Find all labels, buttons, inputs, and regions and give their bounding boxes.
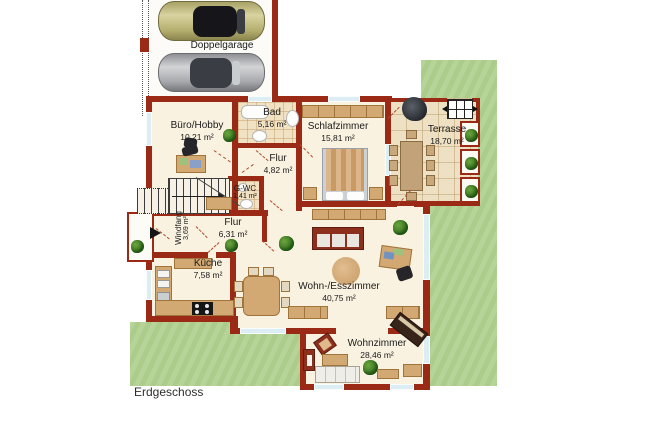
- skylight-arrow: [473, 106, 478, 112]
- room-area: 10,21 m²: [157, 132, 237, 142]
- terrace-chair: [389, 175, 398, 186]
- wall: [236, 143, 302, 148]
- room-area: 18,70 m²: [407, 136, 487, 146]
- sofa-cushions: [317, 234, 359, 247]
- bench: [377, 369, 399, 379]
- car-icon: [158, 1, 265, 41]
- window: [146, 270, 152, 300]
- sofa: [315, 366, 360, 383]
- room-area: 15,81 m²: [298, 133, 378, 143]
- desk-pad: [394, 248, 404, 255]
- room-label-buero: Büro/Hobby 10,21 m²: [157, 120, 237, 142]
- wall: [306, 328, 336, 334]
- wardrobe: [302, 105, 384, 118]
- window: [146, 112, 152, 146]
- garage-label: Doppelgarage: [182, 40, 262, 52]
- room-name: Windfang: [174, 200, 183, 256]
- nightstand: [303, 187, 317, 200]
- tree-icon: [402, 97, 427, 121]
- room-area: 3,69 m²: [183, 200, 191, 256]
- terrace-chair: [426, 175, 435, 186]
- room-label-terrasse: Terrasse 18,70 m²: [407, 124, 487, 146]
- window: [328, 96, 360, 102]
- room-area: 4,82 m²: [238, 165, 318, 175]
- terrace-chair: [426, 160, 435, 171]
- bed-duvet: [326, 149, 364, 191]
- chair: [263, 267, 274, 276]
- window: [248, 96, 272, 102]
- skylight-arrow: [442, 106, 447, 112]
- desk-paper: [190, 160, 201, 168]
- room-area: 6,31 m²: [203, 229, 263, 239]
- nightstand: [369, 187, 383, 200]
- room-name: Küche: [168, 258, 248, 270]
- exterior-steps: [137, 188, 168, 214]
- room-label-schlafzimmer: Schlafzimmer 15,81 m²: [298, 121, 378, 143]
- bed-pillow: [347, 192, 364, 200]
- terrace-chair: [389, 160, 398, 171]
- room-name: Wohnzimmer: [327, 338, 427, 350]
- wall: [296, 201, 397, 207]
- window: [423, 214, 430, 280]
- car-icon: [158, 53, 265, 92]
- wall-unit-inset: [307, 355, 312, 366]
- room-name: Doppelgarage: [182, 40, 262, 52]
- chair: [234, 297, 243, 308]
- room-name: G-WC: [226, 184, 264, 193]
- room-name: Flur: [203, 217, 263, 229]
- room-label-kueche: Küche 7,58 m²: [168, 258, 248, 280]
- plant-icon: [465, 157, 478, 170]
- room-name: Büro/Hobby: [157, 120, 237, 132]
- window: [390, 384, 414, 390]
- skylight-grid-icon: [447, 99, 473, 119]
- sofa: [312, 227, 364, 250]
- wall: [146, 316, 238, 322]
- room-label-windfang: Windfang 3,69 m²: [174, 200, 202, 256]
- wall: [272, 0, 278, 97]
- plant-icon: [465, 185, 478, 198]
- room-label-wohn-esszimmer: Wohn-/Esszimmer 40,75 m²: [289, 281, 389, 303]
- bed: [322, 148, 368, 201]
- window: [240, 328, 286, 334]
- car-windshield: [237, 9, 245, 34]
- wall-unit: [303, 349, 315, 371]
- sideboard: [288, 306, 328, 319]
- dining-table: [243, 276, 280, 316]
- terrace-chair: [426, 145, 435, 156]
- side-table: [403, 364, 422, 377]
- chair: [234, 281, 243, 292]
- room-label-wohnzimmer: Wohnzimmer 28,46 m²: [327, 338, 427, 360]
- room-label-flur-klein: Flur 4,82 m²: [238, 153, 318, 175]
- burner: [195, 304, 199, 308]
- room-area: 1,41 m²: [226, 193, 264, 201]
- car-cabin: [190, 58, 232, 88]
- room-name: Flur: [238, 153, 318, 165]
- room-area: 28,46 m²: [327, 350, 427, 360]
- sideboard: [312, 209, 386, 220]
- wall: [140, 38, 149, 52]
- room-area: 40,75 m²: [289, 293, 389, 303]
- chair: [248, 267, 259, 276]
- desk-pad: [179, 158, 187, 165]
- room-name: Bad: [232, 107, 312, 119]
- page-title: Erdgeschoss: [134, 385, 203, 399]
- fridge-shelf: [157, 280, 170, 288]
- room-name: Wohn-/Esszimmer: [289, 281, 389, 293]
- floor-plan: Doppelgarage: [0, 0, 650, 434]
- room-area: 7,58 m²: [168, 270, 248, 280]
- planter-box: [460, 177, 480, 203]
- bed-pillow: [326, 192, 343, 200]
- terrace-table: [400, 141, 423, 191]
- room-label-flur-gross: Flur 6,31 m²: [203, 217, 263, 239]
- floor-label: Erdgeschoss: [134, 385, 203, 399]
- planter-box: [460, 149, 480, 175]
- window: [314, 384, 344, 390]
- car-windshield: [232, 61, 240, 85]
- stove-icon: [192, 302, 213, 315]
- room-name: Terrasse: [407, 124, 487, 136]
- toilet-icon: [252, 130, 267, 142]
- car-cabin: [193, 6, 237, 37]
- room-name: Schlafzimmer: [298, 121, 378, 133]
- terrace-chair: [389, 145, 398, 156]
- room-label-gwc: G-WC 1,41 m²: [226, 184, 264, 202]
